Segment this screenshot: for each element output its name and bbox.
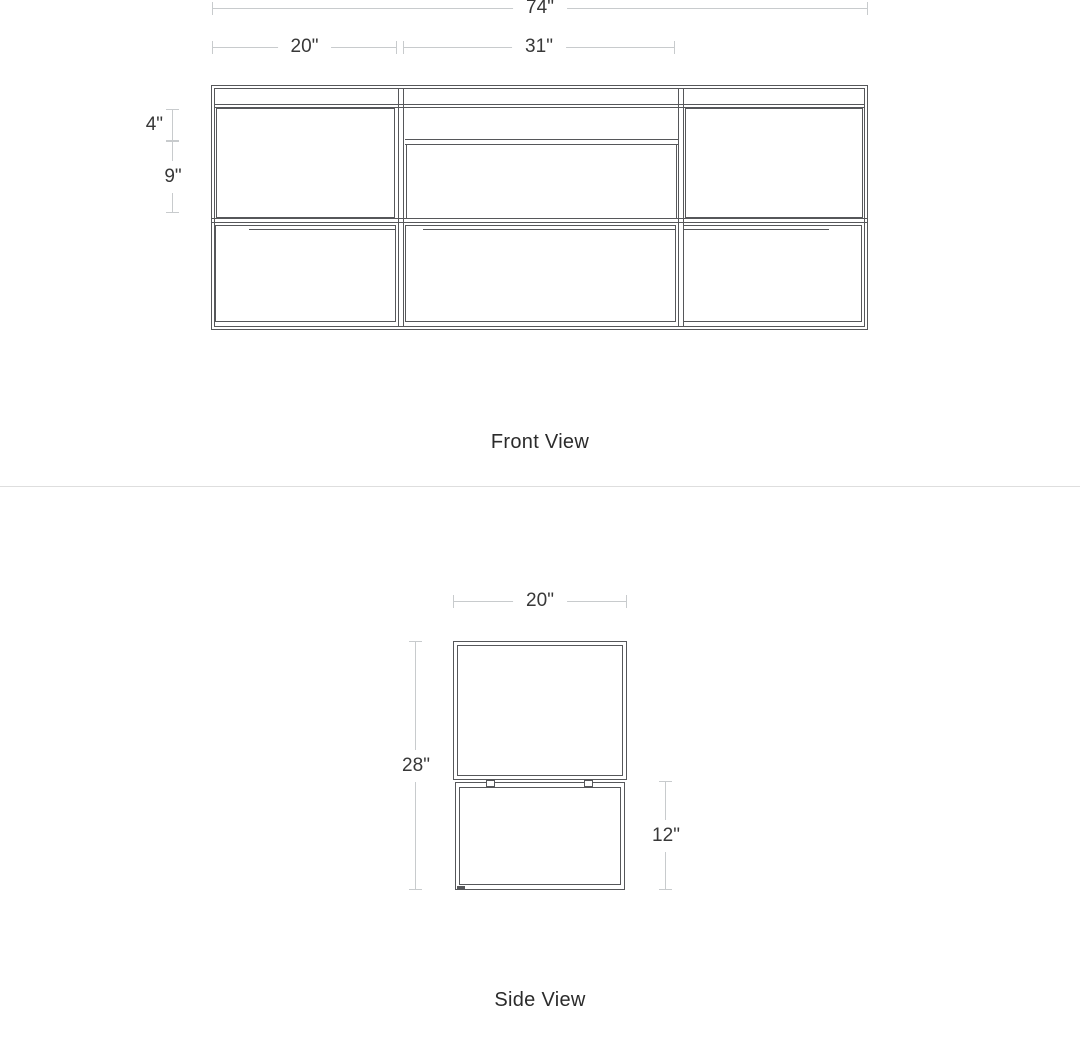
side-foot-mark xyxy=(457,886,465,889)
cabinet-compartment-wall-right xyxy=(676,145,677,218)
dim-front-left-width-label: 20" xyxy=(278,36,332,58)
section-divider xyxy=(0,486,1080,487)
dim-front-center-width-label: 31" xyxy=(512,36,566,58)
product-dimension-diagram: 74" 20" 31" 4" 9" xyxy=(0,0,1080,1045)
cabinet-mid-rail xyxy=(211,218,868,223)
cabinet-drawer-right-pull xyxy=(683,229,829,230)
dim-front-shelf-height: 4" xyxy=(166,109,179,141)
side-upper-inner xyxy=(457,645,623,776)
dim-tick xyxy=(867,2,868,15)
side-base-inner xyxy=(459,787,621,885)
cabinet-center-shelf xyxy=(405,139,678,145)
cabinet-drawer-left xyxy=(215,225,396,322)
dim-tick xyxy=(166,212,179,213)
dim-front-shelf-height-label: 4" xyxy=(146,114,163,136)
side-connector-tab-right xyxy=(584,780,593,787)
cabinet-drawer-center-pull xyxy=(423,229,676,230)
dim-front-left-width: 20" xyxy=(212,41,397,54)
dim-front-compartment-height: 9" xyxy=(166,141,179,213)
dim-tick xyxy=(674,41,675,54)
dim-tick xyxy=(396,41,397,54)
cabinet-door-right xyxy=(685,108,863,218)
dim-tick xyxy=(659,889,672,890)
side-connector-tab-left xyxy=(486,780,495,787)
dim-front-center-width: 31" xyxy=(403,41,675,54)
dim-front-total-width: 74" xyxy=(212,2,868,15)
cabinet-compartment-wall-left xyxy=(406,145,407,218)
dim-side-total-height-label: 28" xyxy=(400,750,432,782)
dim-side-base-height-label: 12" xyxy=(650,820,682,852)
dim-tick xyxy=(409,889,422,890)
cabinet-drawer-right xyxy=(683,225,862,322)
side-view-title: Side View xyxy=(0,988,1080,1012)
front-view-title: Front View xyxy=(0,430,1080,454)
cabinet-drawer-left-pull xyxy=(249,229,396,230)
dim-side-width-label: 20" xyxy=(513,590,567,612)
cabinet-door-left xyxy=(216,108,395,218)
cabinet-drawer-center xyxy=(405,225,676,322)
dim-side-width: 20" xyxy=(453,595,627,608)
dim-side-total-height: 28" xyxy=(409,641,422,890)
dim-front-total-width-label: 74" xyxy=(513,0,567,19)
cabinet-divider-left xyxy=(398,88,404,327)
dim-line xyxy=(172,109,173,141)
dim-front-compartment-height-label: 9" xyxy=(162,161,183,193)
dim-side-base-height: 12" xyxy=(659,781,672,890)
dim-tick xyxy=(626,595,627,608)
